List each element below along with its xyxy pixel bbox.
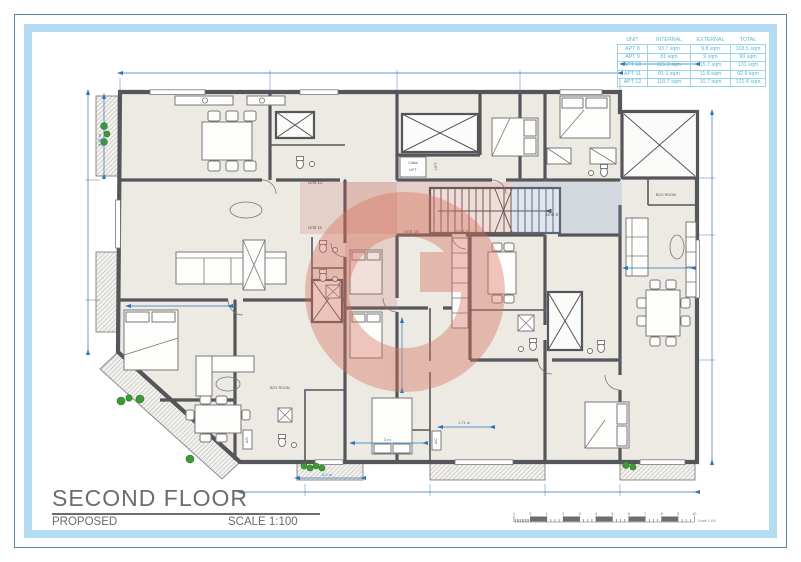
sheet-outer-frame <box>14 14 787 548</box>
